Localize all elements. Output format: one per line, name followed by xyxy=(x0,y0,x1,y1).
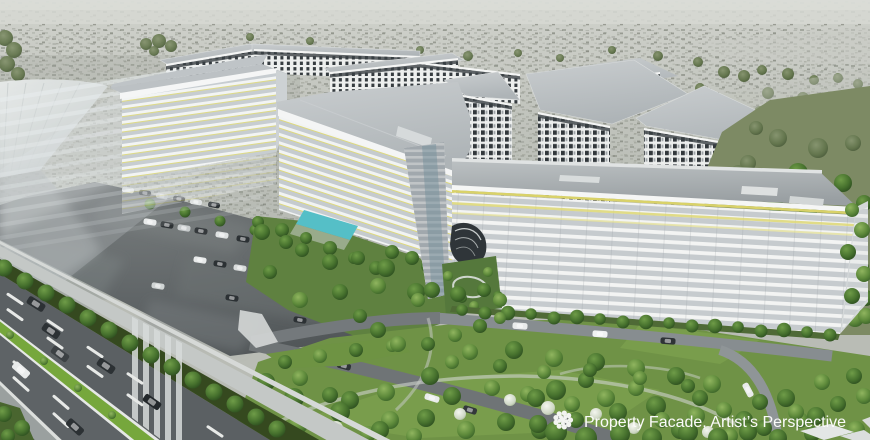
svg-text:Property Facade, Artist’s Pers: Property Facade, Artist’s Perspective xyxy=(584,414,846,431)
